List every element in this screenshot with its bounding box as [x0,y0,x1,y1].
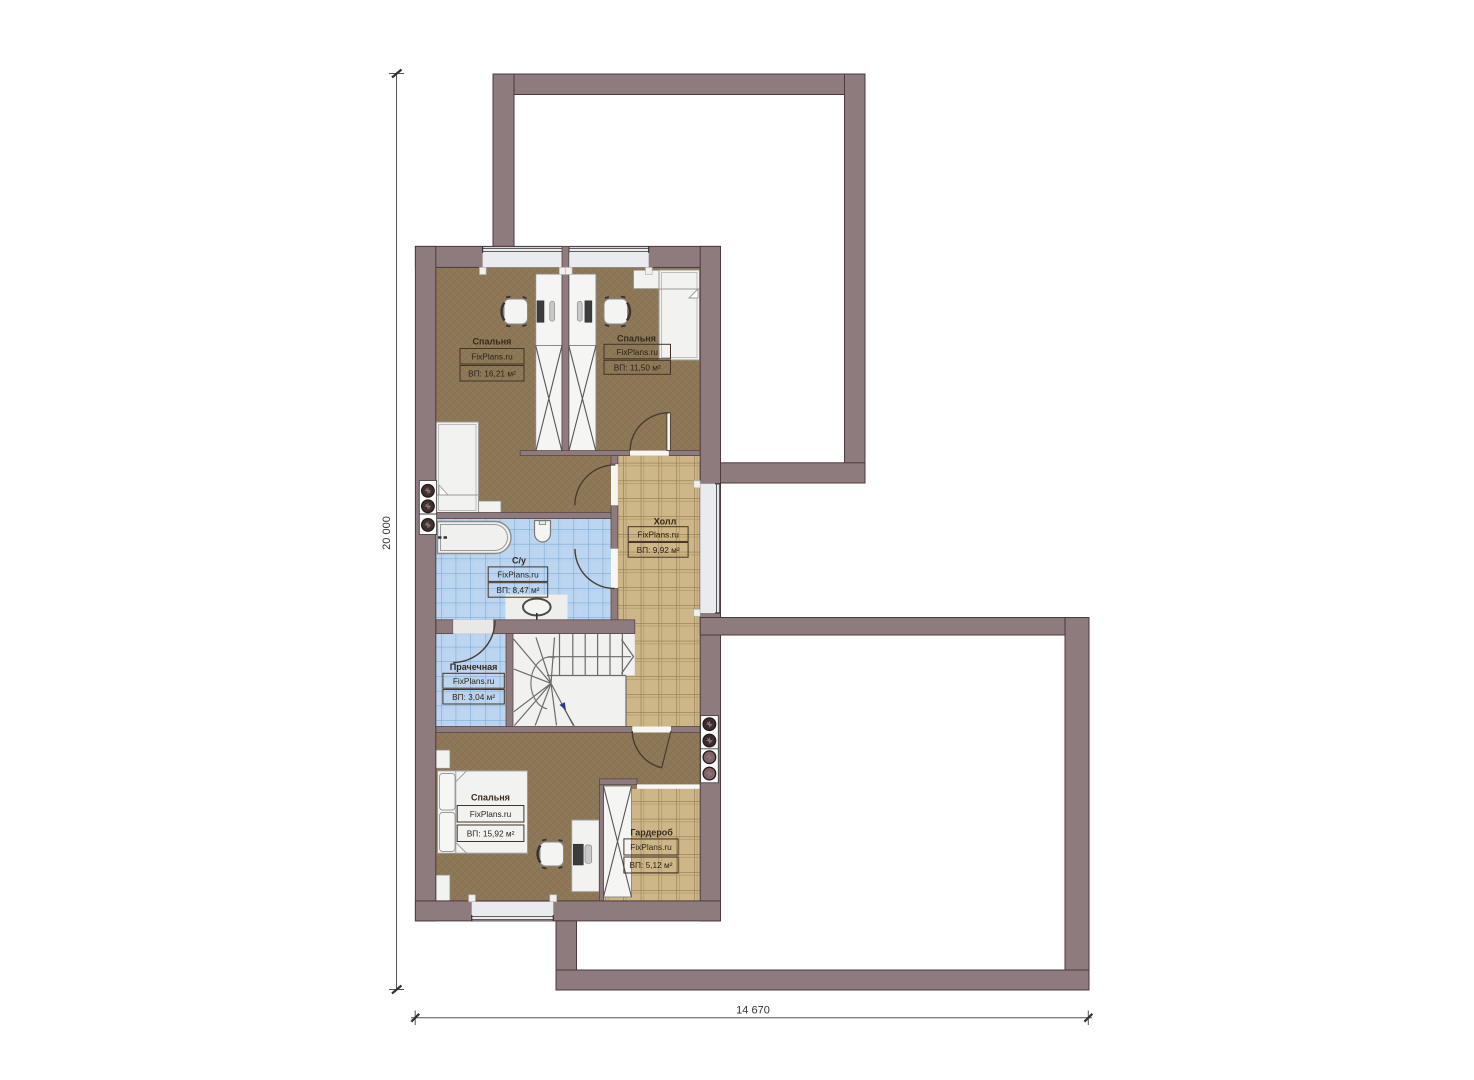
svg-text:ВП: 9,92 м²: ВП: 9,92 м² [637,545,680,555]
svg-text:ВП: 8,47 м²: ВП: 8,47 м² [496,585,539,595]
svg-text:Спальня: Спальня [617,334,656,344]
svg-text:Спальня: Спальня [473,337,512,347]
svg-text:14 670: 14 670 [736,1005,770,1017]
svg-text:Спальня: Спальня [471,793,510,803]
svg-text:ВП: 5,12 м²: ВП: 5,12 м² [629,860,672,870]
svg-text:ВП: 16,21 м²: ВП: 16,21 м² [468,368,516,378]
svg-text:FixPlans.ru: FixPlans.ru [637,529,679,539]
svg-text:ВП: 3,04 м²: ВП: 3,04 м² [452,692,495,702]
svg-text:FixPlans.ru: FixPlans.ru [497,569,539,579]
svg-text:FixPlans.ru: FixPlans.ru [471,351,513,361]
svg-text:FixPlans.ru: FixPlans.ru [453,676,495,686]
svg-text:Прачечная: Прачечная [450,662,498,672]
svg-text:Гардероб: Гардероб [630,828,673,838]
svg-text:С/у: С/у [512,556,526,566]
svg-text:FixPlans.ru: FixPlans.ru [617,347,659,357]
svg-text:FixPlans.ru: FixPlans.ru [470,809,512,819]
svg-text:ВП: 11,50 м²: ВП: 11,50 м² [614,363,661,373]
svg-text:Холл: Холл [654,517,677,527]
svg-text:20 000: 20 000 [381,516,393,550]
svg-text:ВП: 15,92 м²: ВП: 15,92 м² [467,828,515,838]
svg-text:FixPlans.ru: FixPlans.ru [630,842,672,852]
